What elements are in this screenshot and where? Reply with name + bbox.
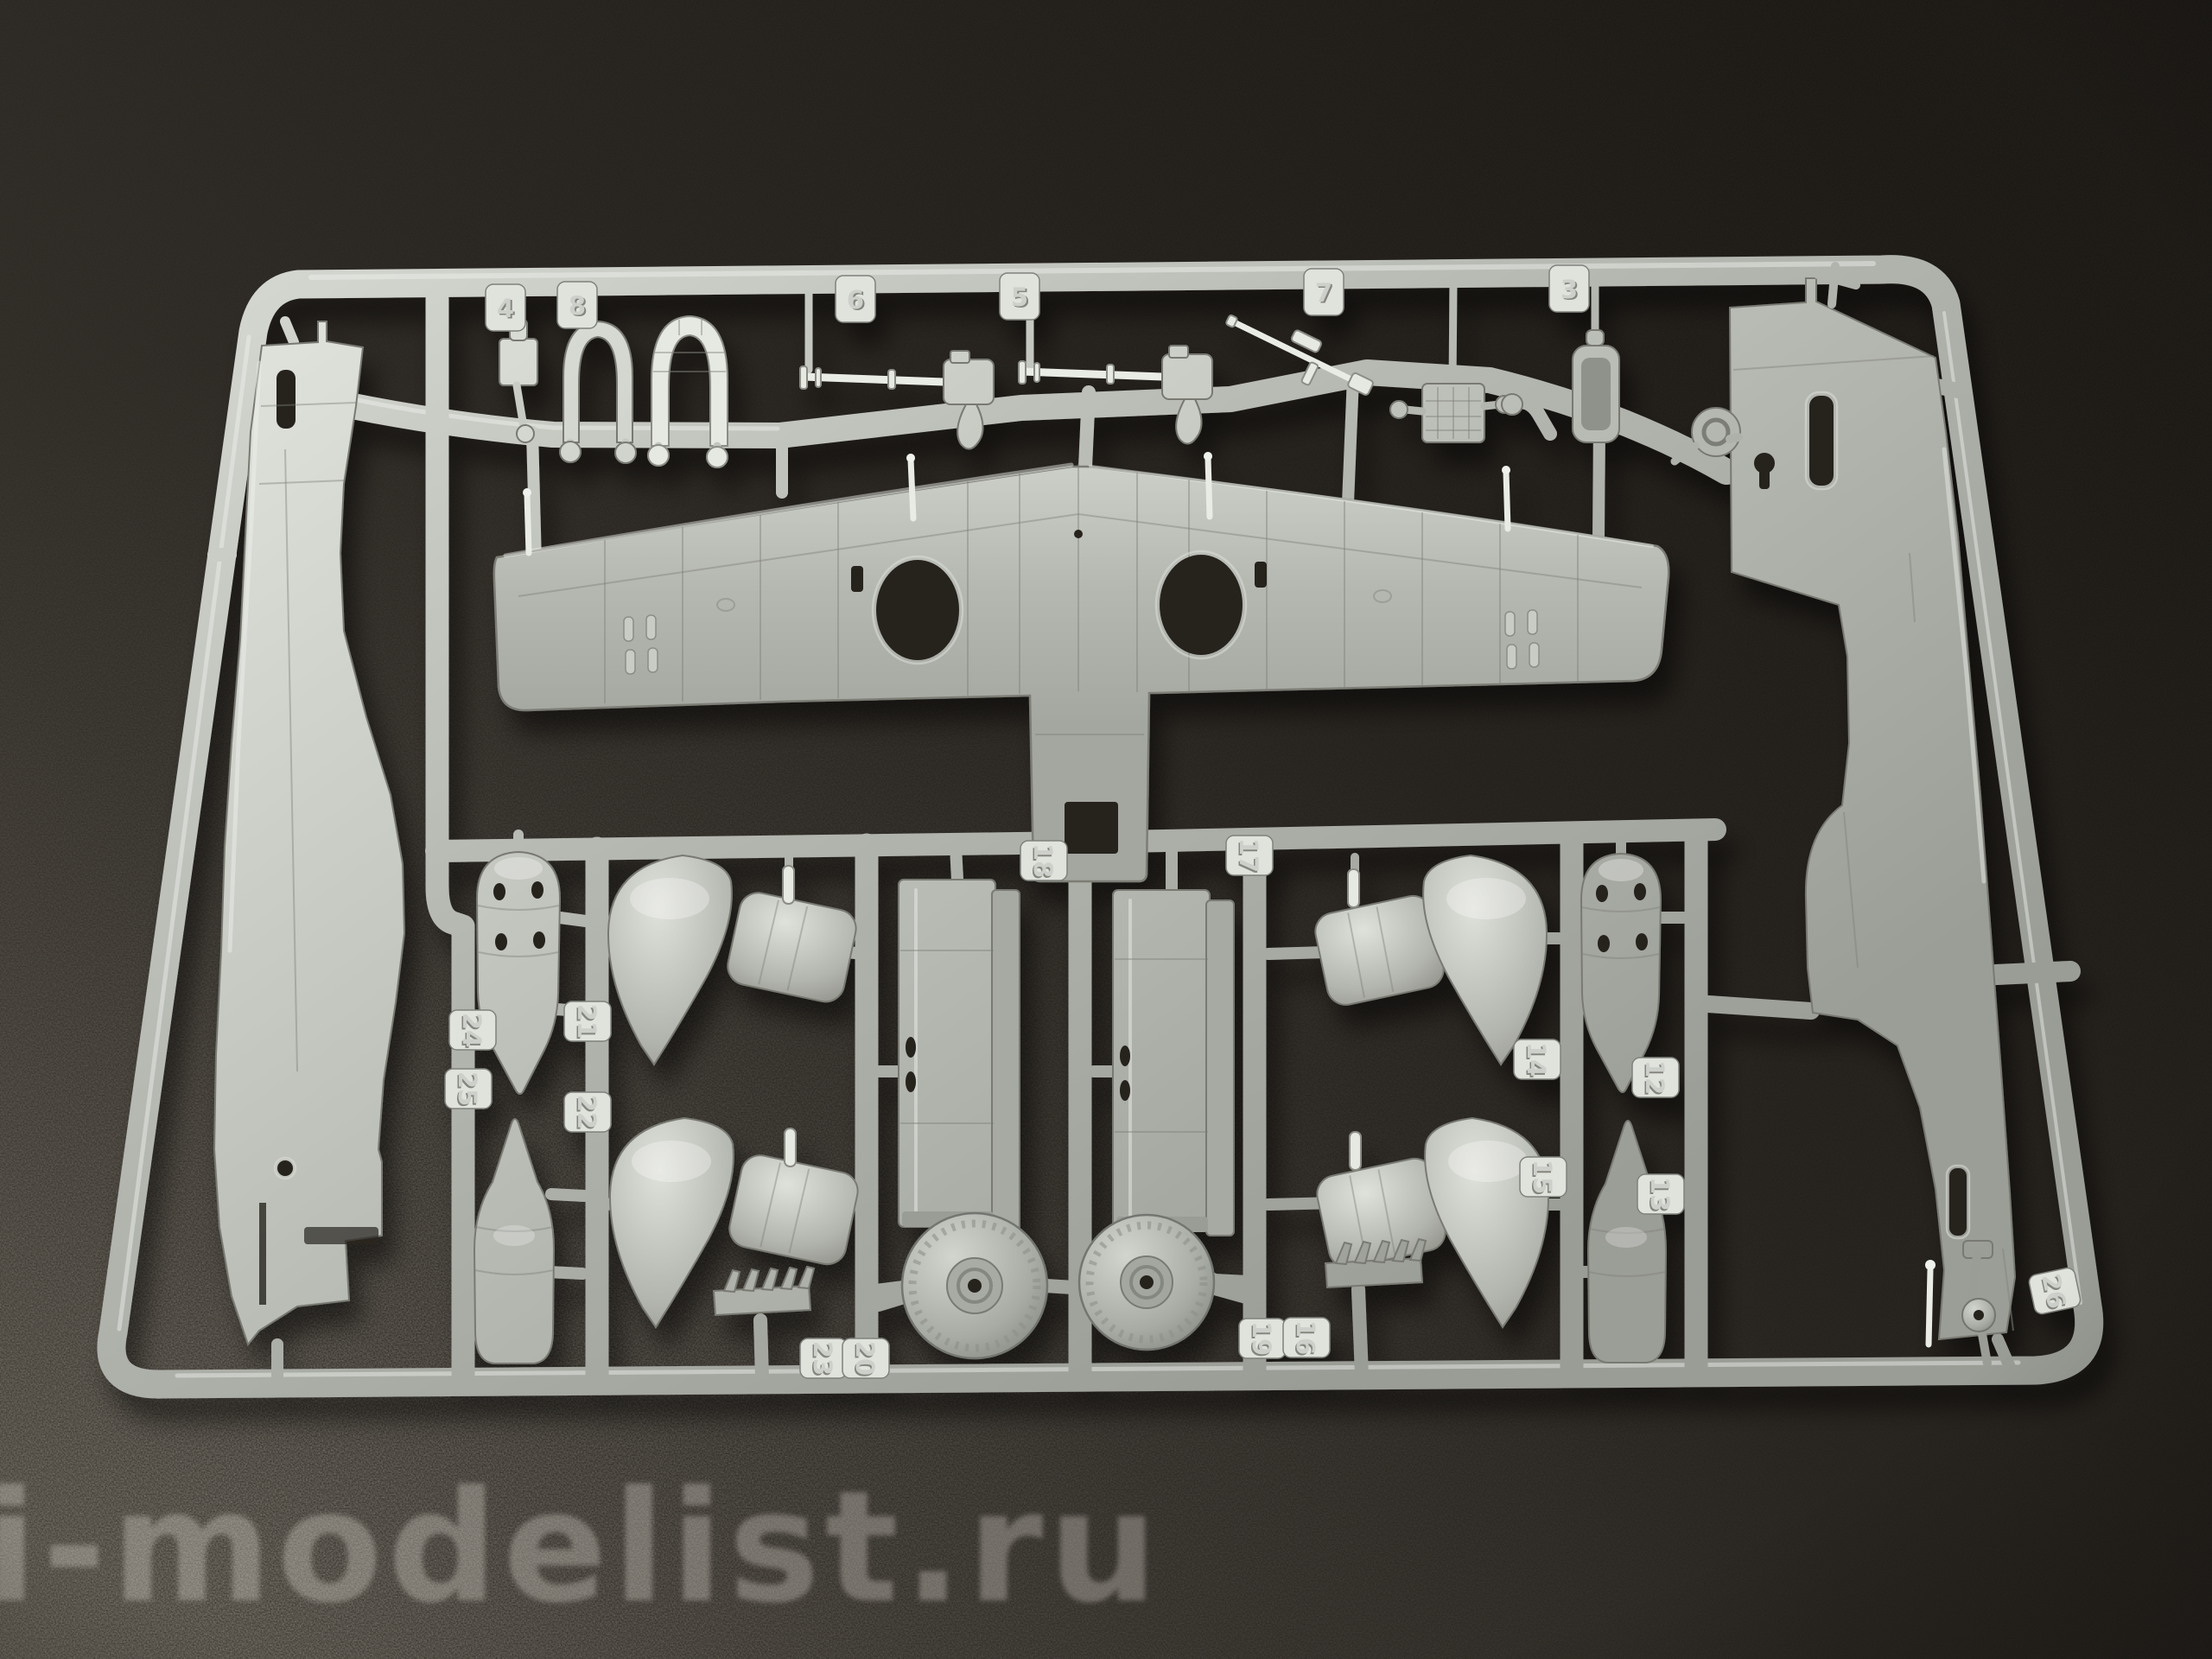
sprue-photo: i-modelist.ru <box>0 0 2212 1659</box>
vignette <box>0 0 2212 1659</box>
photo-canvas: i-modelist.ru <box>0 0 2212 1659</box>
